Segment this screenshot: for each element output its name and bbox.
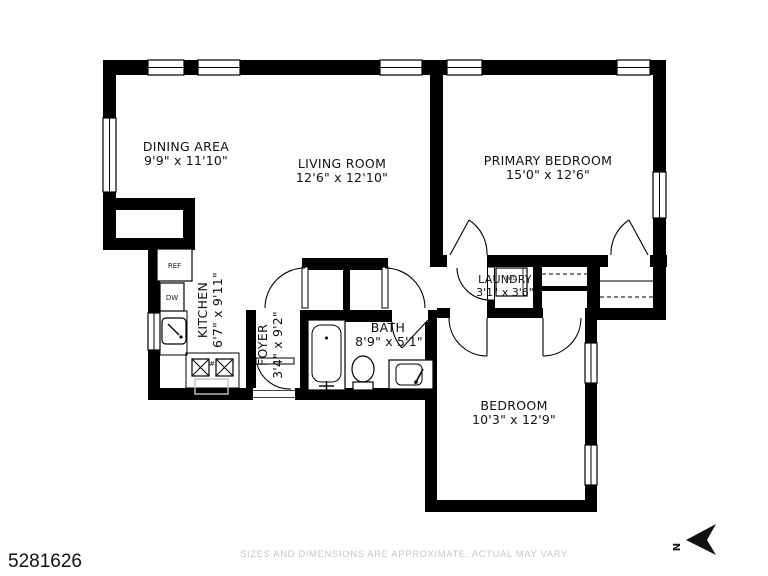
room-dims-bedroom: 10'3" x 12'9": [472, 412, 556, 427]
window: [447, 60, 482, 75]
kitchen-sink-icon: [162, 318, 186, 344]
room-label-bath: BATH: [371, 320, 405, 335]
window: [198, 60, 240, 75]
window: [617, 60, 650, 75]
room-label-dining-area: DINING AREA: [143, 139, 229, 154]
window: [380, 60, 422, 75]
listing-number: 5281626: [8, 551, 82, 572]
window: [103, 118, 116, 192]
north-arrow-icon: N: [672, 524, 716, 555]
floor-plan-page: W/D DINING AREA 9'9" x 11'10" LIVING ROO…: [0, 0, 768, 576]
room-dims-laundry: 3'1" x 3'6": [476, 286, 534, 299]
bedroom-door: [449, 318, 487, 356]
primary-bedroom-door: [450, 220, 487, 255]
burner-mark: #: [209, 360, 215, 368]
room-label-laundry: LAUNDRY: [478, 273, 532, 286]
ref-label: REF: [168, 262, 181, 270]
north-label: N: [672, 543, 683, 551]
room-dims-kitchen: 6'7" x 9'11": [210, 272, 225, 348]
closet-door: [265, 267, 308, 308]
closet-door: [382, 267, 425, 308]
window: [585, 445, 597, 485]
bedroom-hall-door: [543, 318, 581, 356]
disclaimer-text: SIZES AND DIMENSIONS ARE APPROXIMATE, AC…: [240, 549, 570, 560]
dw-label: DW: [166, 294, 178, 302]
primary-closet-door: [611, 220, 648, 255]
window: [148, 60, 184, 75]
room-dims-bath: 8'9" x 5'1": [355, 334, 423, 349]
room-label-living-room: LIVING ROOM: [298, 156, 386, 171]
window: [585, 343, 597, 383]
room-dims-foyer: 3'4" x 9'2": [270, 311, 285, 379]
window: [148, 313, 160, 350]
room-dims-dining-area: 9'9" x 11'10": [144, 153, 228, 168]
floor-plan-svg: W/D DINING AREA 9'9" x 11'10" LIVING ROO…: [0, 0, 768, 576]
room-label-bedroom: BEDROOM: [480, 398, 547, 413]
room-label-primary-bedroom: PRIMARY BEDROOM: [484, 153, 613, 168]
room-label-kitchen: KITCHEN: [195, 282, 210, 338]
room-dims-primary-bedroom: 15'0" x 12'6": [506, 167, 590, 182]
window: [653, 172, 666, 218]
room-dims-living-room: 12'6" x 12'10": [296, 170, 388, 185]
room-label-foyer: FOYER: [255, 324, 270, 366]
toilet-icon: [352, 356, 374, 390]
bathroom-sink-icon: [389, 360, 433, 389]
footer: 5281626 SIZES AND DIMENSIONS ARE APPROXI…: [8, 524, 716, 572]
bathtub-icon: [308, 320, 345, 390]
